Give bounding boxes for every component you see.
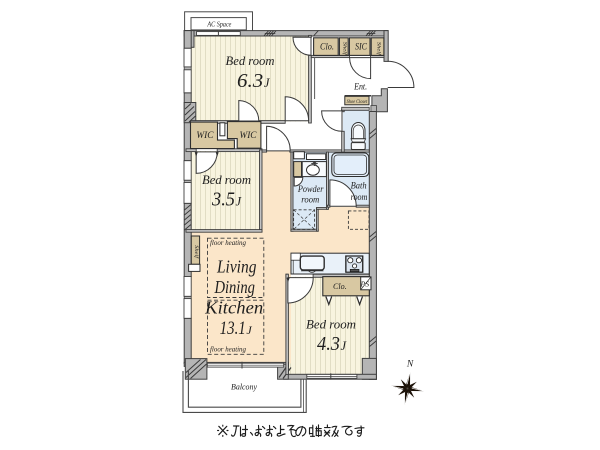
svg-text:J: J <box>246 323 252 337</box>
svg-text:floor heating: floor heating <box>210 239 246 247</box>
svg-text:SIC: SIC <box>355 41 368 51</box>
svg-text:PS: PS <box>359 281 369 289</box>
svg-text:room: room <box>301 195 319 205</box>
svg-text:WIC: WIC <box>196 131 214 141</box>
svg-text:N: N <box>406 359 414 369</box>
svg-text:4.3: 4.3 <box>317 334 340 355</box>
svg-text:Bed room: Bed room <box>202 173 251 187</box>
svg-text:Shoe Closet: Shoe Closet <box>347 100 368 105</box>
svg-text:Living: Living <box>216 256 256 276</box>
svg-text:Shelf: Shelf <box>342 42 349 57</box>
svg-text:room: room <box>351 192 368 202</box>
svg-text:Bath: Bath <box>351 181 367 191</box>
svg-text:Clo.: Clo. <box>320 41 334 51</box>
svg-text:WIC: WIC <box>240 131 258 141</box>
svg-text:3.5: 3.5 <box>211 189 235 210</box>
svg-text:floor heating: floor heating <box>210 345 246 353</box>
svg-text:Balcony: Balcony <box>231 381 257 391</box>
svg-text:Bed room: Bed room <box>306 318 356 332</box>
svg-text:Dining: Dining <box>214 277 255 297</box>
svg-text:6.3: 6.3 <box>237 71 263 92</box>
svg-text:Powder: Powder <box>297 184 324 194</box>
svg-text:Ent.: Ent. <box>353 81 367 91</box>
svg-text:Kitchen: Kitchen <box>204 298 263 318</box>
svg-text:13.1: 13.1 <box>220 319 246 339</box>
svg-text:Bed room: Bed room <box>226 54 275 68</box>
svg-text:Shelf: Shelf <box>375 42 382 57</box>
svg-text:Shelf: Shelf <box>193 245 200 260</box>
svg-text:AC Space: AC Space <box>207 21 233 29</box>
svg-text:Clo.: Clo. <box>333 281 347 291</box>
